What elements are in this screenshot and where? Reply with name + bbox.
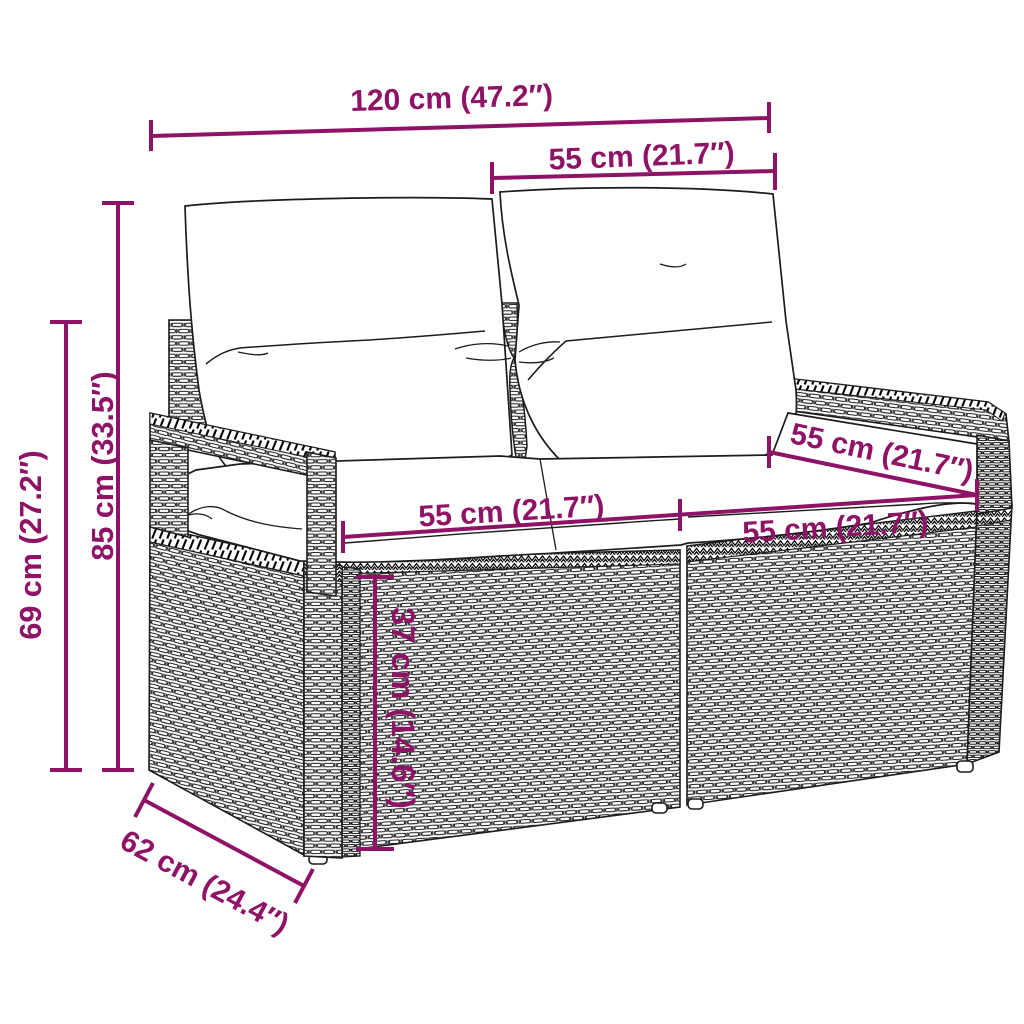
svg-text:120 cm (47.2″): 120 cm (47.2″) — [350, 79, 554, 118]
svg-text:37 cm (14.6″): 37 cm (14.6″) — [385, 607, 421, 809]
svg-text:69 cm (27.2″): 69 cm (27.2″) — [14, 450, 48, 639]
svg-text:85 cm (33.5″): 85 cm (33.5″) — [86, 371, 120, 560]
